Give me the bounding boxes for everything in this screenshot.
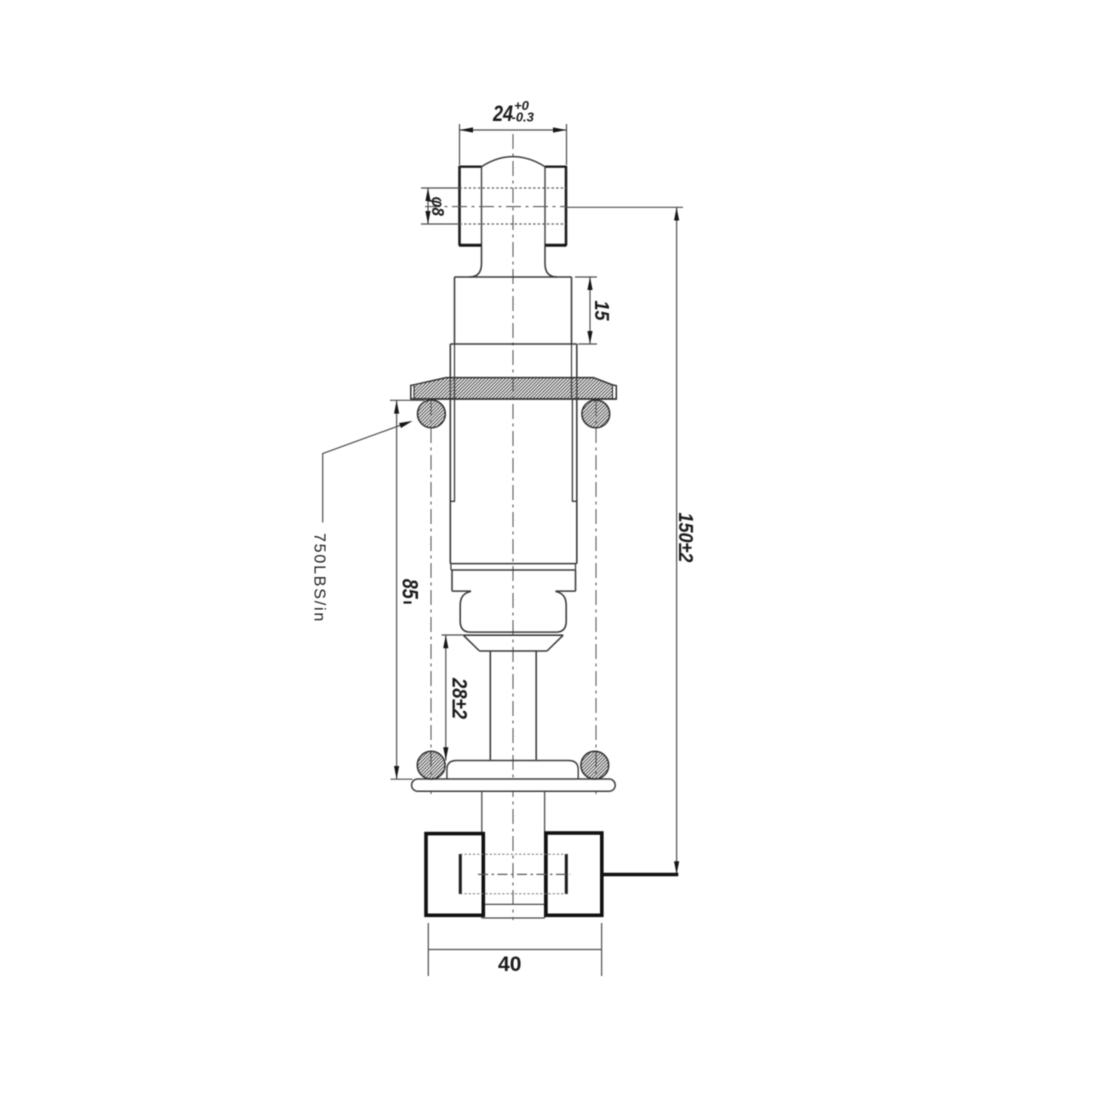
svg-text:750LBS/in: 750LBS/in <box>311 533 328 623</box>
svg-text:150±2: 150±2 <box>674 512 696 562</box>
svg-text:24: 24 <box>492 102 513 126</box>
svg-text:40: 40 <box>498 953 521 976</box>
svg-text:φ8: φ8 <box>427 197 447 217</box>
svg-text:-0.3: -0.3 <box>512 110 535 125</box>
svg-text:28±2: 28±2 <box>447 677 470 719</box>
svg-text:15: 15 <box>590 300 612 320</box>
svg-text:85: 85 <box>397 579 421 600</box>
